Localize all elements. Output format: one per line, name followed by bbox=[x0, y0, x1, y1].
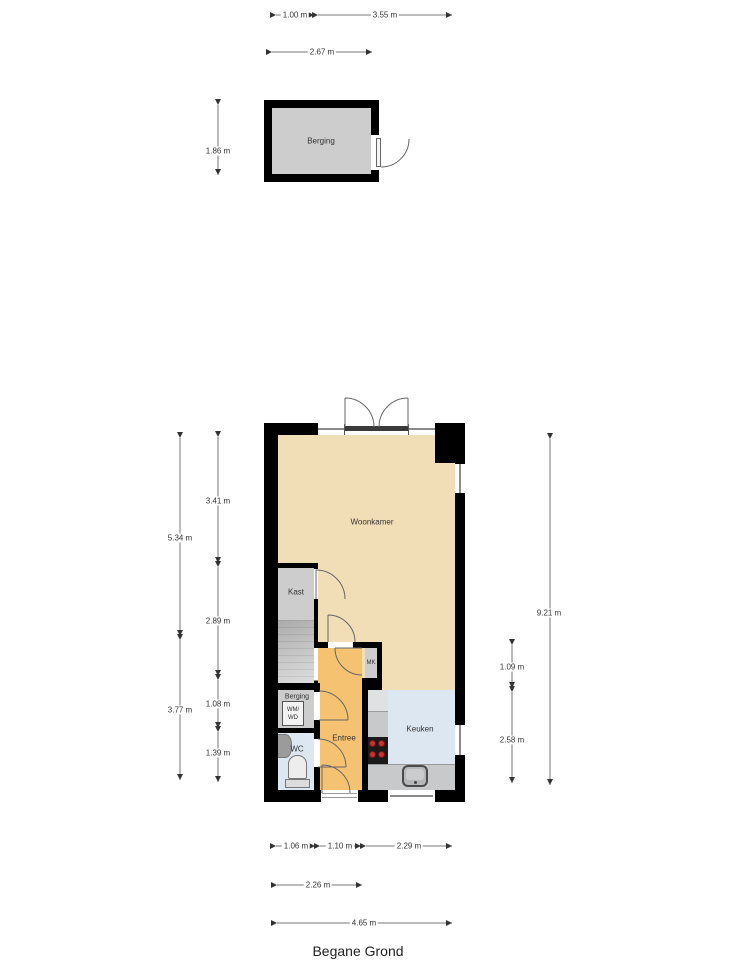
entree-floor bbox=[318, 648, 362, 790]
kitchen-sink-tap bbox=[414, 781, 417, 784]
french-door-left bbox=[345, 398, 374, 427]
page-title: Begane Grond bbox=[312, 943, 403, 959]
room-label-woonkamer: Woonkamer bbox=[351, 518, 394, 527]
dim-1-10-m: 1.10 m bbox=[326, 842, 354, 851]
floorplan-canvas: Berging WM/ WD bbox=[0, 0, 730, 973]
shed-door-arc bbox=[381, 139, 409, 167]
kast-door-opening bbox=[314, 569, 318, 599]
wall-kast-top bbox=[278, 563, 318, 568]
washer-dryer-label-line2: WD bbox=[288, 715, 298, 721]
wc-door-opening bbox=[314, 739, 320, 767]
window-right-upper-frame bbox=[459, 464, 461, 493]
french-door-right bbox=[379, 398, 408, 427]
dim-2-26-m: 2.26 m bbox=[304, 881, 332, 890]
dim-5-34-m: 5.34 m bbox=[166, 534, 194, 543]
wall-outer-top-left bbox=[264, 423, 318, 435]
dim-3-41-m: 3.41 m bbox=[204, 497, 232, 506]
dim-2-58-m: 2.58 m bbox=[498, 736, 526, 745]
room-label-mk: MK bbox=[367, 660, 376, 666]
woonkamer-entree-door-opening bbox=[328, 642, 353, 648]
dim-4-65-m: 4.65 m bbox=[350, 919, 378, 928]
dim-1-08-m: 1.08 m bbox=[204, 700, 232, 709]
staircase bbox=[278, 620, 314, 683]
front-door-opening bbox=[321, 790, 358, 802]
front-door-threshold-line bbox=[322, 793, 357, 794]
dim-1-06-m: 1.06 m bbox=[282, 842, 310, 851]
dim-3-55-m: 3.55 m bbox=[371, 11, 399, 20]
window-bottom-frame bbox=[390, 795, 433, 797]
wall-mk-bottom bbox=[362, 678, 382, 690]
glass-front-mullion bbox=[344, 424, 345, 435]
window-right-lower-frame bbox=[459, 725, 461, 755]
wall-outer-left bbox=[264, 423, 278, 802]
room-label-wc: WC bbox=[290, 745, 303, 754]
washer-dryer-label-line1: WM/ bbox=[287, 707, 299, 713]
dim-2-89-m: 2.89 m bbox=[204, 617, 232, 626]
stairs-closet-opening bbox=[314, 644, 318, 681]
french-door-threshold bbox=[345, 426, 408, 431]
room-label-kast: Kast bbox=[288, 588, 304, 597]
stove-burner bbox=[369, 740, 376, 747]
room-label-keuken: Keuken bbox=[406, 725, 433, 734]
dim-1-39-m: 1.39 m bbox=[204, 749, 232, 758]
wall-stairs-berging-divider bbox=[278, 683, 320, 690]
front-door-threshold-line bbox=[322, 797, 357, 798]
dim-2-67-m: 2.67 m bbox=[308, 48, 336, 57]
wall-outer-top-right-corner bbox=[435, 423, 465, 463]
dim-1-00-m: 1.00 m bbox=[281, 11, 309, 20]
washer-dryer-box: WM/ WD bbox=[282, 701, 304, 726]
shed-door-leaf bbox=[376, 138, 381, 167]
toilet-bowl bbox=[288, 755, 307, 779]
toilet-tank bbox=[285, 779, 310, 788]
room-label-entree: Entree bbox=[332, 734, 356, 743]
dim-9-21-m: 9.21 m bbox=[535, 609, 563, 618]
stove bbox=[367, 737, 388, 764]
wall-entree-keuken bbox=[362, 690, 368, 790]
dim-1-09-m: 1.09 m bbox=[498, 663, 526, 672]
berging-door-opening bbox=[314, 692, 320, 720]
dim-2-29-m: 2.29 m bbox=[395, 842, 423, 851]
stove-burner bbox=[378, 740, 385, 747]
stove-burner bbox=[369, 751, 376, 758]
stove-burner bbox=[378, 751, 385, 758]
dim-3-77-m: 3.77 m bbox=[166, 706, 194, 715]
kitchen-sink bbox=[402, 765, 428, 787]
room-label-shed-berging: Berging bbox=[307, 137, 335, 146]
wall-berging-wc-divider bbox=[278, 728, 314, 733]
kitchen-sink-basin bbox=[406, 769, 424, 780]
glass-front-mullion bbox=[408, 424, 409, 435]
kitchen-counter-top-section bbox=[368, 690, 388, 712]
room-label-berging: Berging bbox=[285, 694, 309, 701]
dim-1-86-m: 1.86 m bbox=[204, 147, 232, 156]
